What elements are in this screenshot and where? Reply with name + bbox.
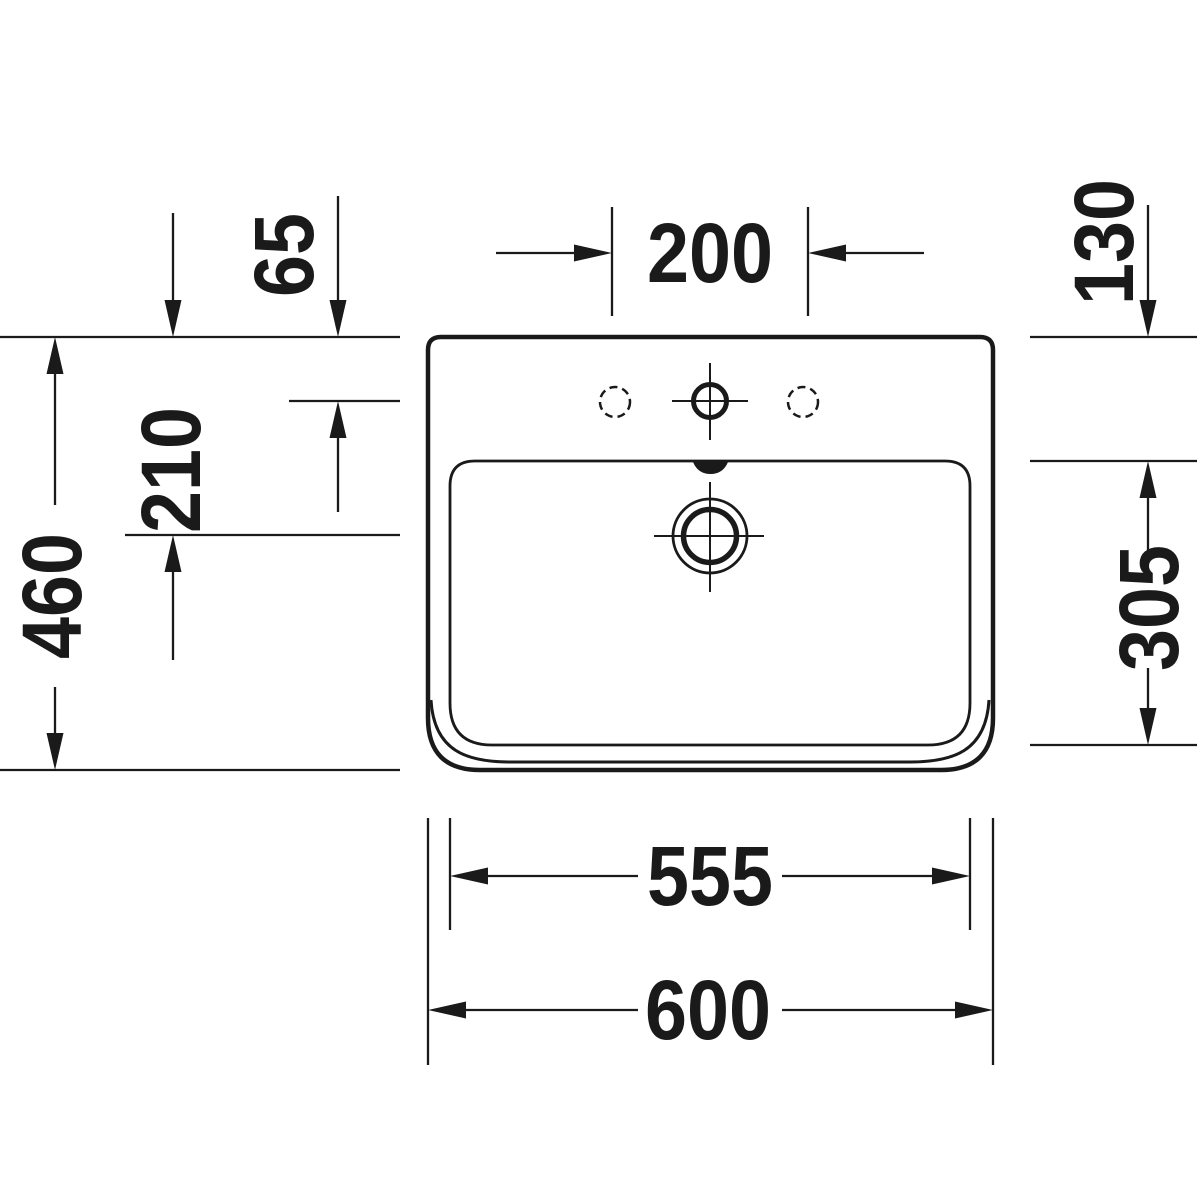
washbasin-drawing: 200 65 210 460	[0, 0, 1200, 1200]
technical-drawing-canvas: 200 65 210 460	[0, 0, 1200, 1200]
dim-200-arrowhead-left	[574, 245, 612, 262]
dim-label-rim-to-drain-axis: 210	[124, 407, 218, 533]
dimension-bowl-depth: 305	[1102, 461, 1196, 745]
dim-65-arrowhead-down	[330, 300, 347, 337]
dimension-overall-depth: 460	[5, 337, 99, 770]
dim-555-arrowhead-left	[450, 868, 488, 885]
dim-label-faucet-spacing: 200	[647, 206, 773, 300]
drain	[654, 482, 764, 592]
dim-label-bowl-width: 555	[647, 829, 773, 923]
dimension-bowl-width: 555	[450, 829, 970, 923]
overflow-notch	[693, 462, 728, 474]
dim-460-arrowhead-up	[47, 337, 64, 374]
dimension-rim-to-bowl-front: 130	[1057, 179, 1157, 337]
dim-label-overall-depth: 460	[5, 533, 99, 659]
dim-210-arrowhead-down	[165, 300, 182, 337]
dim-210-arrowhead-up	[165, 535, 182, 572]
dim-label-overall-width: 600	[645, 963, 771, 1057]
dim-555-arrowhead-right	[932, 868, 970, 885]
dim-200-arrowhead-right	[808, 245, 846, 262]
dim-label-rim-to-faucet-axis: 65	[237, 213, 331, 297]
dimension-rim-to-faucet-axis: 65	[237, 196, 347, 512]
dimension-rim-to-drain-axis: 210	[124, 213, 218, 660]
dim-65-arrowhead-up	[330, 401, 347, 438]
dim-600-arrowhead-left	[428, 1002, 466, 1019]
dim-label-rim-to-bowl-front: 130	[1057, 179, 1151, 305]
dimension-overall-width: 600	[428, 963, 993, 1057]
dim-305-arrowhead-down	[1140, 708, 1157, 745]
dim-label-bowl-depth: 305	[1102, 545, 1196, 671]
dim-305-arrowhead-up	[1140, 461, 1157, 498]
dimension-faucet-spacing: 200	[496, 206, 924, 316]
dim-460-arrowhead-down	[47, 733, 64, 770]
faucet-hole-right-optional	[788, 387, 818, 417]
faucet-holes	[600, 363, 818, 440]
faucet-hole-left-optional	[600, 387, 630, 417]
dim-600-arrowhead-right	[955, 1002, 993, 1019]
sink-front-silhouette-line	[431, 700, 989, 762]
